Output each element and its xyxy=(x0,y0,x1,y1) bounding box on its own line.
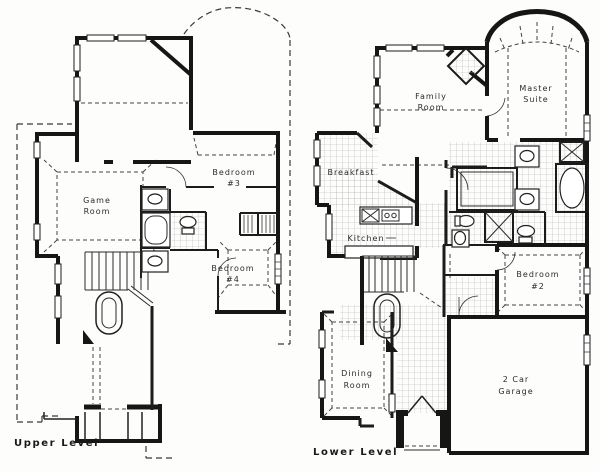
porch-wall xyxy=(440,416,448,448)
lower-window xyxy=(314,166,320,186)
lower-window xyxy=(374,86,380,104)
family-room-label: Family xyxy=(415,92,447,101)
bathtub-icon xyxy=(560,168,584,208)
upper-window xyxy=(34,224,40,240)
game-room-tray-dash xyxy=(44,160,156,252)
upper-window xyxy=(55,296,61,318)
hall-tile xyxy=(417,203,449,248)
toilet-icon xyxy=(518,226,535,237)
bedroom2-label: Bedroom xyxy=(516,270,559,279)
bath2-tile xyxy=(443,277,495,317)
upper-level-caption: Upper Level xyxy=(14,438,99,449)
upper-window xyxy=(118,35,146,41)
sink-icon xyxy=(520,151,534,162)
kitchen-label: Kitchen xyxy=(347,234,384,243)
bedroom3-label2: #3 xyxy=(227,179,241,188)
upper-window xyxy=(34,142,40,158)
upper-bath-fixtures xyxy=(142,167,274,276)
sink-icon xyxy=(455,232,466,245)
toilet-tank xyxy=(519,237,532,243)
bedroom2-label2: #2 xyxy=(531,282,545,291)
master-suite-label2: Suite xyxy=(523,95,548,104)
bedroom2-tray-dash xyxy=(497,247,588,313)
game-room-label: Game xyxy=(83,196,111,205)
game-room-label2: Room xyxy=(84,207,111,216)
lower-window xyxy=(417,45,444,51)
family-room-label2: Room xyxy=(418,103,445,112)
lower-window xyxy=(386,45,412,51)
sink-icon xyxy=(520,194,534,205)
dining-room-label: Dining xyxy=(341,369,373,378)
master-tray-dash xyxy=(495,22,579,138)
upper-bay-mullion-lines xyxy=(85,412,142,441)
garage-label: 2 Car xyxy=(503,375,529,384)
lower-window xyxy=(584,268,590,294)
lower-stair-treads xyxy=(362,256,417,292)
bedroom4-label2: #4 xyxy=(226,275,240,284)
sink-icon xyxy=(148,256,162,266)
lower-window xyxy=(314,140,320,158)
lower-window xyxy=(584,115,590,141)
upper-wall-wedge xyxy=(83,330,94,344)
master-suite-label: Master xyxy=(519,84,552,93)
lower-window xyxy=(319,330,325,348)
upper-window xyxy=(74,77,80,101)
lower-window xyxy=(584,335,590,365)
upper-step-connector xyxy=(44,412,77,419)
toilet-tank xyxy=(182,228,194,234)
upper-banister-inner xyxy=(102,298,116,328)
porch-wall xyxy=(396,416,404,448)
garage-label2: Garage xyxy=(498,387,533,396)
upper-window xyxy=(87,35,114,41)
upper-window xyxy=(74,45,80,71)
lower-window xyxy=(374,56,380,78)
dining-room-label2: Room xyxy=(344,381,371,390)
upper-window xyxy=(55,264,61,284)
upper-roof-outline-left xyxy=(17,124,72,422)
upper-bay-walls xyxy=(75,404,162,441)
bedroom3-tray-dash xyxy=(194,137,277,155)
upper-level-plan: Game Room Bedroom #3 Bedroom #4 Upper Le… xyxy=(14,8,290,458)
lower-level-plan: Family Room Master Suite Breakfast Kitch… xyxy=(313,12,590,459)
sink-icon xyxy=(148,194,162,204)
pantry-opening xyxy=(326,214,332,240)
upper-open-shaft-dash xyxy=(93,347,100,404)
floor-plan-drawing: Game Room Bedroom #3 Bedroom #4 Upper Le… xyxy=(0,0,600,472)
lower-window xyxy=(389,394,395,412)
bedroom4-label: Bedroom xyxy=(211,264,254,273)
lower-level-caption: Lower Level xyxy=(313,447,398,458)
lower-window xyxy=(319,380,325,398)
toilet-tank xyxy=(455,216,460,226)
bedroom3-label: Bedroom xyxy=(212,168,255,177)
door-jamb xyxy=(396,410,408,416)
door-jamb xyxy=(436,410,448,416)
toilet-icon xyxy=(180,217,196,228)
bathtub xyxy=(142,213,170,247)
breakfast-label: Breakfast xyxy=(327,168,374,177)
floor-plan-page: Game Room Bedroom #3 Bedroom #4 Upper Le… xyxy=(0,0,600,472)
lower-window xyxy=(374,108,380,126)
